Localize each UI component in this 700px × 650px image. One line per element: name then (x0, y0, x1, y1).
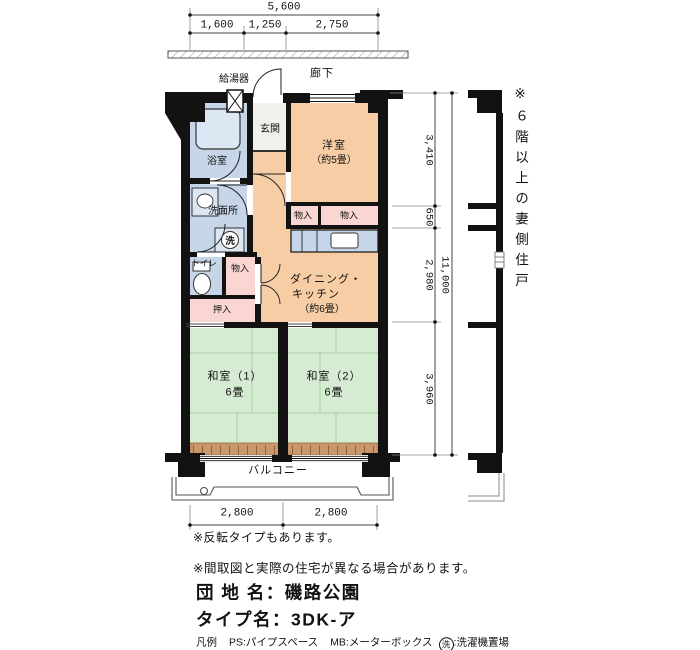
tatami1-floor (190, 328, 278, 443)
tatami1-label: 和室（1） (207, 372, 262, 383)
legend-line: 凡例PS:パイプスペースMB:メーターボックス洗:洗濯機置場 (196, 634, 509, 650)
entrance-door-arc (253, 69, 281, 97)
dim-right-3410: 3,410 (423, 134, 434, 166)
tatami-divider-wall (278, 322, 288, 462)
tatami2-label: 和室（2） (306, 372, 361, 383)
toilet-bowl-shape (194, 274, 211, 295)
dim-seg-1250: 1,250 (248, 21, 281, 32)
legend-ps: PS:パイプスペース (229, 636, 318, 648)
western-room-size: （約5畳） (311, 156, 357, 166)
dk-label-line2: キッチン (292, 290, 340, 301)
left-outer-wall (181, 135, 190, 455)
kitchen-sink-shape (331, 233, 358, 248)
type-name-value: 3DK-ア (291, 610, 357, 630)
dim-right-total: 11,000 (439, 256, 450, 294)
dk-label-line3: （約6畳） (299, 305, 345, 315)
type-name-separator: ： (272, 610, 291, 630)
closet-label: 押入 (213, 306, 231, 315)
dim-seg-1600: 1,600 (200, 21, 233, 32)
dim-right-2980: 2,980 (423, 259, 434, 291)
western-room-label: 洋室 (322, 141, 346, 152)
dim-seg-2750: 2,750 (315, 21, 348, 32)
right-outer-wall (378, 103, 388, 455)
balcony-railing (172, 477, 393, 500)
water-heater-box (227, 90, 243, 112)
balcony-label: バルコニー (248, 466, 308, 477)
tatami2-size: 6畳 (324, 388, 343, 399)
type-name-line: タイプ名：3DK-ア (196, 607, 357, 632)
water-heater-label: 給湯器 (219, 75, 249, 85)
storage-top-right-label: 物入 (340, 212, 358, 221)
floor-plan-page: 5,600 1,600 1,250 2,750 廊下 給湯器 玄関 洋室 （約5… (0, 0, 700, 650)
estate-name-separator: ： (266, 583, 285, 603)
floor-plan-drawing (0, 0, 700, 650)
corridor-label: 廊下 (310, 69, 334, 80)
corner-pillar-bottom-left (165, 453, 205, 462)
gable-wall-section (468, 90, 504, 501)
corner-pillar-top-right (360, 90, 403, 99)
entrance-step-line (253, 150, 286, 152)
legend-title: 凡例 (196, 636, 217, 648)
dim-right-650: 650 (423, 208, 434, 227)
dim-total-width: 5,600 (267, 3, 300, 14)
dim-bottom-left: 2,800 (220, 509, 253, 520)
legend-mb: MB:メーターボックス (330, 636, 432, 648)
washroom-label: 洗面所 (208, 207, 238, 217)
estate-name-line: 団 地 名：磯路公園 (196, 580, 361, 605)
estate-name-value: 磯路公園 (285, 583, 361, 603)
balcony-drain-circle (201, 488, 208, 495)
laundry-symbol: 洗 (221, 231, 239, 249)
dk-label-line1: ダイニング・ (290, 275, 362, 286)
tatami2-floor (288, 328, 378, 443)
gable-side-note: ※６階以上の妻側住戸 (510, 86, 530, 294)
western-room-floor (291, 103, 378, 202)
note-reversed-type: ※反転タイプもあります。 (193, 529, 340, 546)
legend-laundry-symbol: 洗 (439, 637, 454, 650)
storage-top-left-label: 物入 (294, 212, 312, 221)
bath-label: 浴室 (207, 157, 227, 167)
tatami1-size: 6畳 (225, 388, 244, 399)
entrance-label: 玄関 (260, 125, 280, 135)
toilet-label: トイレ (191, 259, 217, 268)
estate-name-label: 団 地 名 (196, 583, 266, 603)
legend-laundry-text: :洗濯機置場 (454, 636, 509, 648)
dim-bottom-right: 2,800 (314, 509, 347, 520)
note-disclaimer: ※間取図と実際の住宅が異なる場合があります。 (193, 558, 476, 577)
dim-right-3960: 3,960 (423, 373, 434, 405)
storage-mid-label: 物入 (231, 265, 249, 274)
type-name-label: タイプ名 (196, 610, 272, 630)
corridor-strip (168, 51, 408, 58)
